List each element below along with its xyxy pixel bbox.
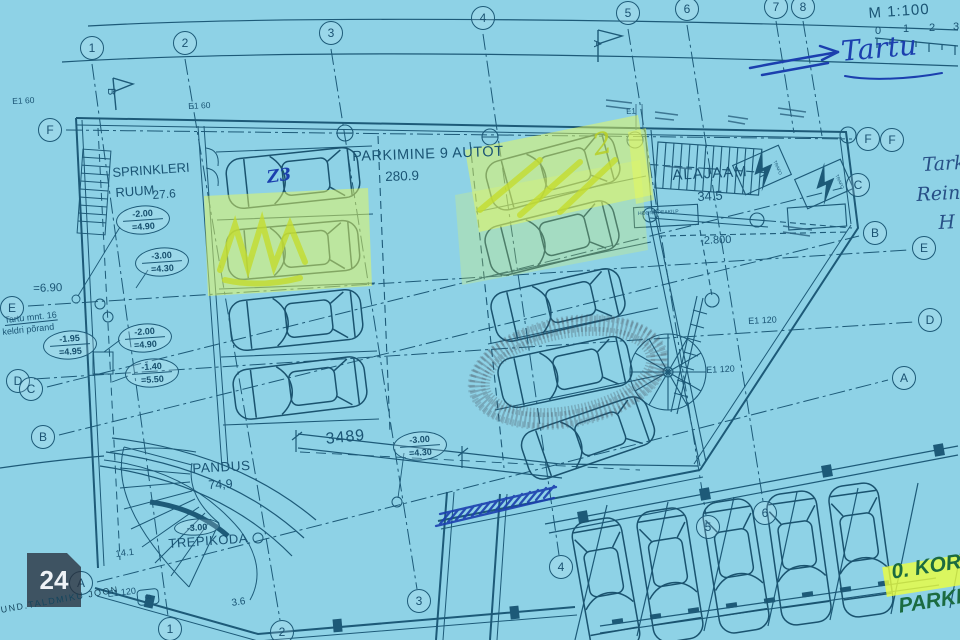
- scale-tick-2: 2: [929, 23, 935, 34]
- alajaam-label: ALAJAAM: [672, 164, 748, 183]
- grid-bubble-bottom-1: 1: [158, 617, 182, 640]
- grid-bubble-top-2: 2: [173, 31, 197, 55]
- parking-room-area: 280.9: [385, 169, 419, 184]
- alajaam-area: 34.5: [697, 189, 723, 203]
- grid-bubble-right-A: A: [892, 366, 916, 390]
- e1-note-a: E1 60: [12, 96, 35, 106]
- grid-bubble-left-C: C: [19, 377, 43, 401]
- section-letter-b: B: [105, 88, 116, 95]
- grid-bubble-left-E: E: [0, 296, 24, 320]
- car-icon: [827, 481, 895, 619]
- e1-note-e: E1 120: [706, 365, 735, 375]
- blueprint-linework: [0, 0, 960, 640]
- grid-bubble-top-3: 3: [319, 21, 343, 45]
- e1-note-d: E1 120: [748, 316, 777, 326]
- yellow-highlights: [204, 115, 654, 296]
- margin-handwriting-3: H: [938, 213, 956, 233]
- grid-bubble-right-E: E: [912, 236, 936, 260]
- grid-bubble-top-4: 4: [471, 6, 495, 30]
- alajaam-level: -2.800: [700, 235, 732, 247]
- grid-bubble-bottom-5: 5: [696, 515, 720, 539]
- grid-bubble-right-F1: F: [856, 127, 880, 151]
- outdoor-parking: [144, 443, 960, 640]
- pen-arrow: [750, 46, 838, 75]
- grid-lines: [28, 21, 914, 620]
- approx-level-note: =6.90: [33, 283, 62, 296]
- sprinkler-room-area: 27.6: [152, 187, 176, 201]
- stairwell-area: 14.1: [115, 548, 135, 560]
- scale-label: M 1:100: [868, 2, 930, 21]
- grid-bubble-right-D: D: [918, 308, 942, 332]
- sprinkler-room-label-2: RUUM: [115, 183, 155, 199]
- e1-note-b: E1 60: [188, 101, 211, 111]
- grid-bubble-bottom-2: 2: [270, 620, 294, 640]
- dimension-3-6: 3.6: [231, 597, 246, 609]
- grid-bubble-left-F: F: [38, 118, 62, 142]
- pen-marks: [436, 46, 942, 526]
- grid-bubble-bottom-6: 6: [753, 501, 777, 525]
- pen-underline: [845, 73, 942, 79]
- grid-bubble-left-B: B: [31, 425, 55, 449]
- section-letter-a: A: [591, 40, 602, 47]
- handwritten-site-name: Tartu: [840, 31, 918, 66]
- margin-handwriting-1: Tark: [922, 154, 960, 175]
- ramp-label: PANDUS: [192, 459, 251, 476]
- e1-note-f: E1: [626, 108, 636, 116]
- grid-bubble-right-F2: F: [880, 128, 904, 152]
- column-mark-box: 8: [136, 588, 160, 606]
- grid-bubble-right-B: B: [863, 221, 887, 245]
- grid-bubble-bottom-3: 3: [407, 589, 431, 613]
- scale-tick-3: 3: [953, 22, 959, 33]
- grid-bubble-top-5: 5: [616, 1, 640, 25]
- margin-handwriting-2: Reina: [916, 183, 960, 205]
- ramp-area: 74,9: [208, 478, 233, 492]
- car-icon: [228, 288, 365, 352]
- pen-car-mark: Z3: [266, 167, 292, 187]
- blueprint-photo: M 1:100 0 1 2 3 Tartu SPRINKLERI RUUM 27…: [0, 0, 960, 640]
- grid-bubble-top-1: 1: [80, 36, 104, 60]
- grid-bubble-right-C: C: [846, 173, 870, 197]
- ramp-curves: [0, 430, 698, 556]
- grid-bubble-bottom-4: 4: [549, 555, 573, 579]
